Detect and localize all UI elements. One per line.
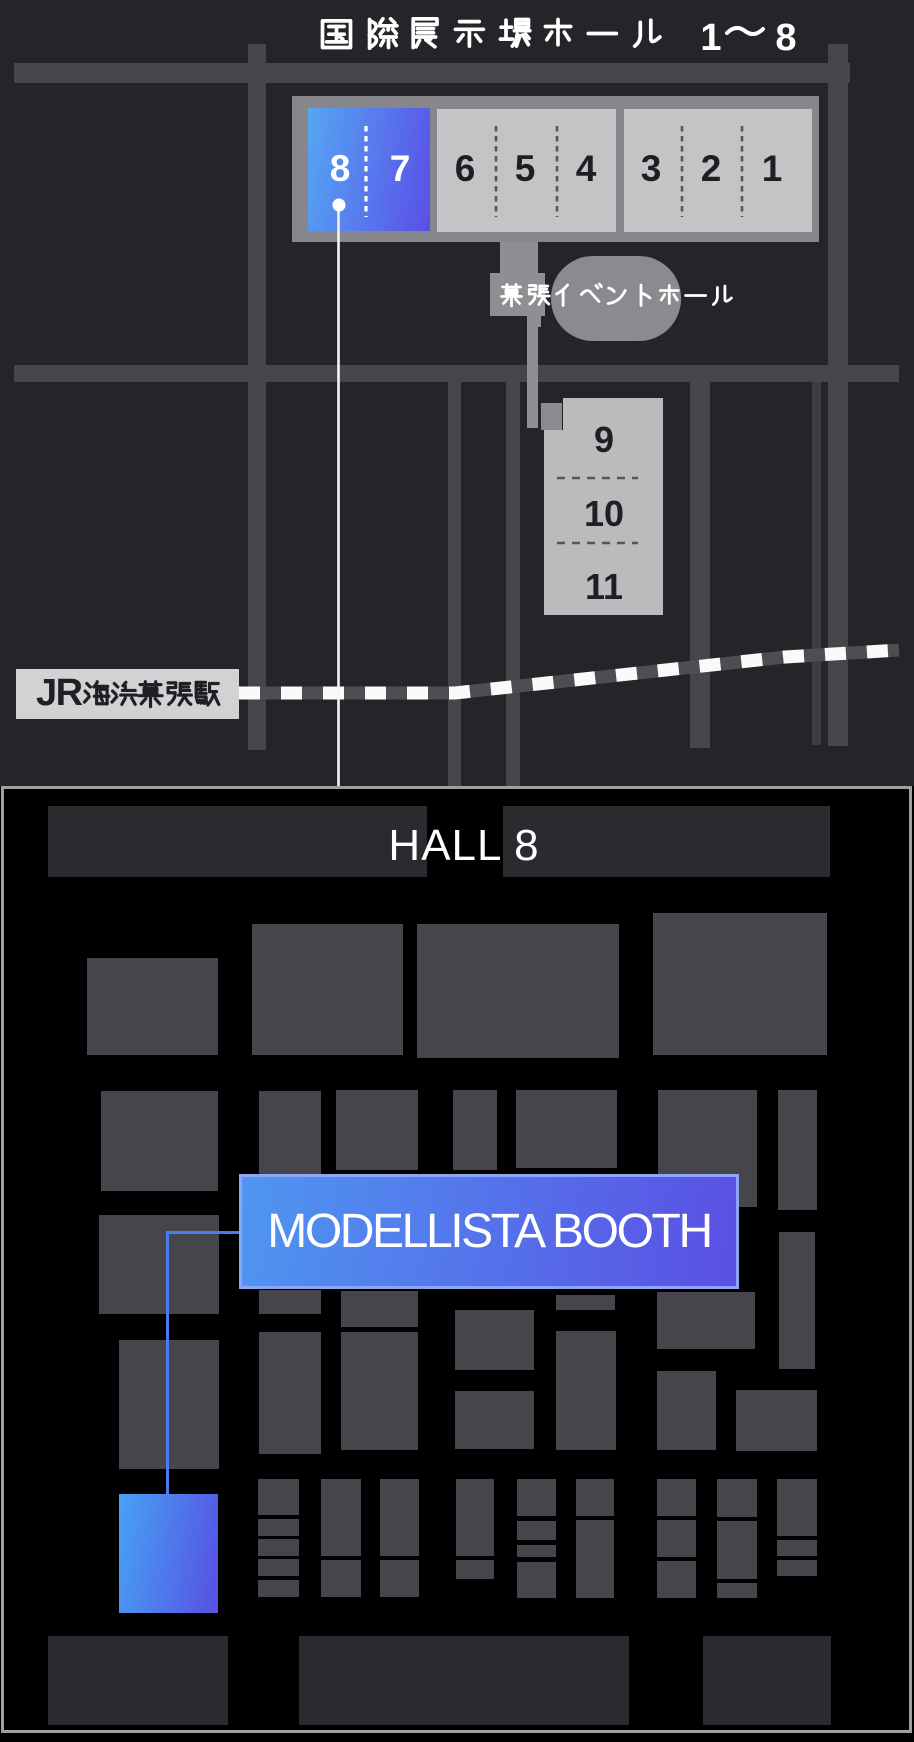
svg-text:1: 1 xyxy=(700,17,721,59)
svg-text:JR: JR xyxy=(36,672,83,714)
svg-text:8: 8 xyxy=(775,17,796,59)
